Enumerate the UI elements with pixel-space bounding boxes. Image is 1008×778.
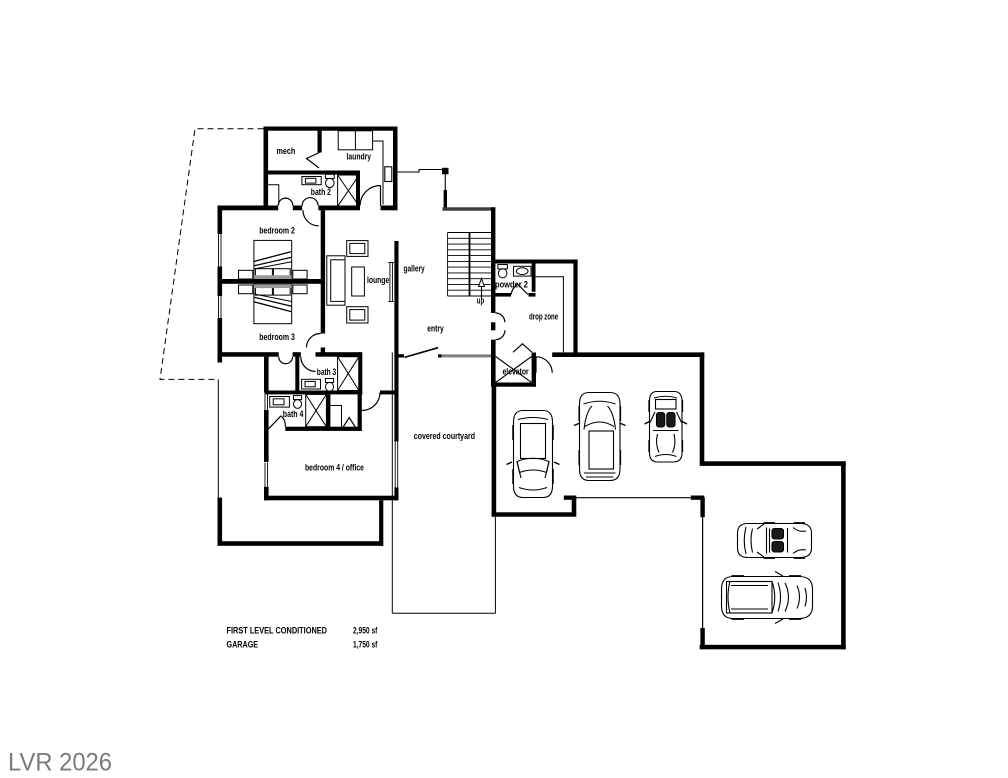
svg-text:up: up: [477, 295, 485, 305]
svg-text:bath 3: bath 3: [317, 367, 336, 377]
svg-text:FIRST LEVEL CONDITIONED: FIRST LEVEL CONDITIONED: [227, 625, 328, 636]
svg-text:GARAGE: GARAGE: [227, 640, 259, 651]
svg-text:mech: mech: [277, 146, 296, 156]
svg-text:gallery: gallery: [404, 263, 426, 273]
svg-text:bedroom 4 / office: bedroom 4 / office: [305, 462, 364, 472]
svg-text:LVR 2026: LVR 2026: [8, 749, 112, 777]
svg-text:bath 4: bath 4: [283, 409, 304, 419]
svg-text:bedroom 2: bedroom 2: [259, 225, 295, 235]
svg-text:bath 2: bath 2: [311, 187, 331, 197]
svg-text:2,950 sf: 2,950 sf: [353, 625, 378, 636]
svg-text:drop zone: drop zone: [529, 311, 558, 321]
svg-text:1,750 sf: 1,750 sf: [353, 640, 378, 651]
svg-text:lounge: lounge: [367, 275, 389, 285]
svg-text:elevator: elevator: [503, 366, 530, 376]
svg-text:bedroom 3: bedroom 3: [259, 332, 295, 342]
svg-text:covered courtyard: covered courtyard: [414, 431, 475, 441]
svg-text:powder 2: powder 2: [495, 279, 528, 289]
svg-text:laundry: laundry: [347, 151, 372, 161]
svg-text:entry: entry: [427, 323, 444, 333]
